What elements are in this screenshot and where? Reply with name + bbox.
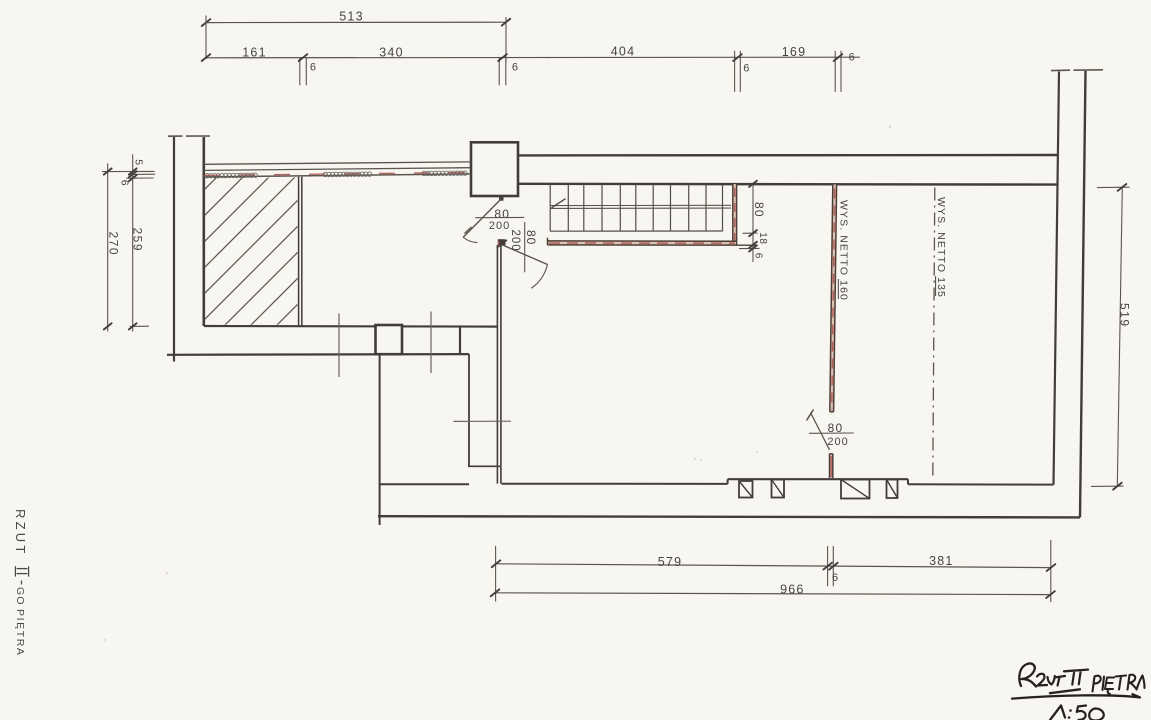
svg-text:579: 579 [658,555,682,569]
svg-text:6: 6 [119,180,131,186]
svg-text:80: 80 [524,230,538,245]
svg-text:381: 381 [929,554,953,568]
svg-text:340: 340 [379,45,403,59]
svg-text:259: 259 [131,228,145,253]
svg-text:200: 200 [509,230,521,252]
svg-text:PIĘTRA: PIĘTRA [14,609,26,657]
svg-text:WYS. NETTO 160: WYS. NETTO 160 [838,200,850,301]
svg-text:80: 80 [752,202,766,218]
svg-text:200: 200 [827,436,848,448]
svg-text:80: 80 [494,207,510,221]
svg-text:RZUT: RZUT [13,509,28,556]
svg-text:169: 169 [782,45,806,59]
svg-text:6: 6 [743,63,749,75]
svg-text:18: 18 [757,232,768,244]
svg-text:200: 200 [489,220,510,232]
svg-text:161: 161 [242,45,266,59]
svg-text:519: 519 [1117,303,1131,328]
svg-text:6: 6 [832,572,838,584]
svg-text:5: 5 [132,159,144,165]
svg-text:GO: GO [14,587,26,606]
svg-text:6: 6 [849,51,855,63]
svg-text:966: 966 [780,582,804,596]
svg-text:404: 404 [611,45,635,59]
svg-text:6: 6 [310,62,316,74]
svg-text:6: 6 [753,253,764,259]
svg-text:270: 270 [106,232,120,257]
svg-text:6: 6 [512,62,518,74]
svg-text:513: 513 [339,9,363,23]
svg-text:WYS. NETTO 135: WYS. NETTO 135 [935,197,947,298]
